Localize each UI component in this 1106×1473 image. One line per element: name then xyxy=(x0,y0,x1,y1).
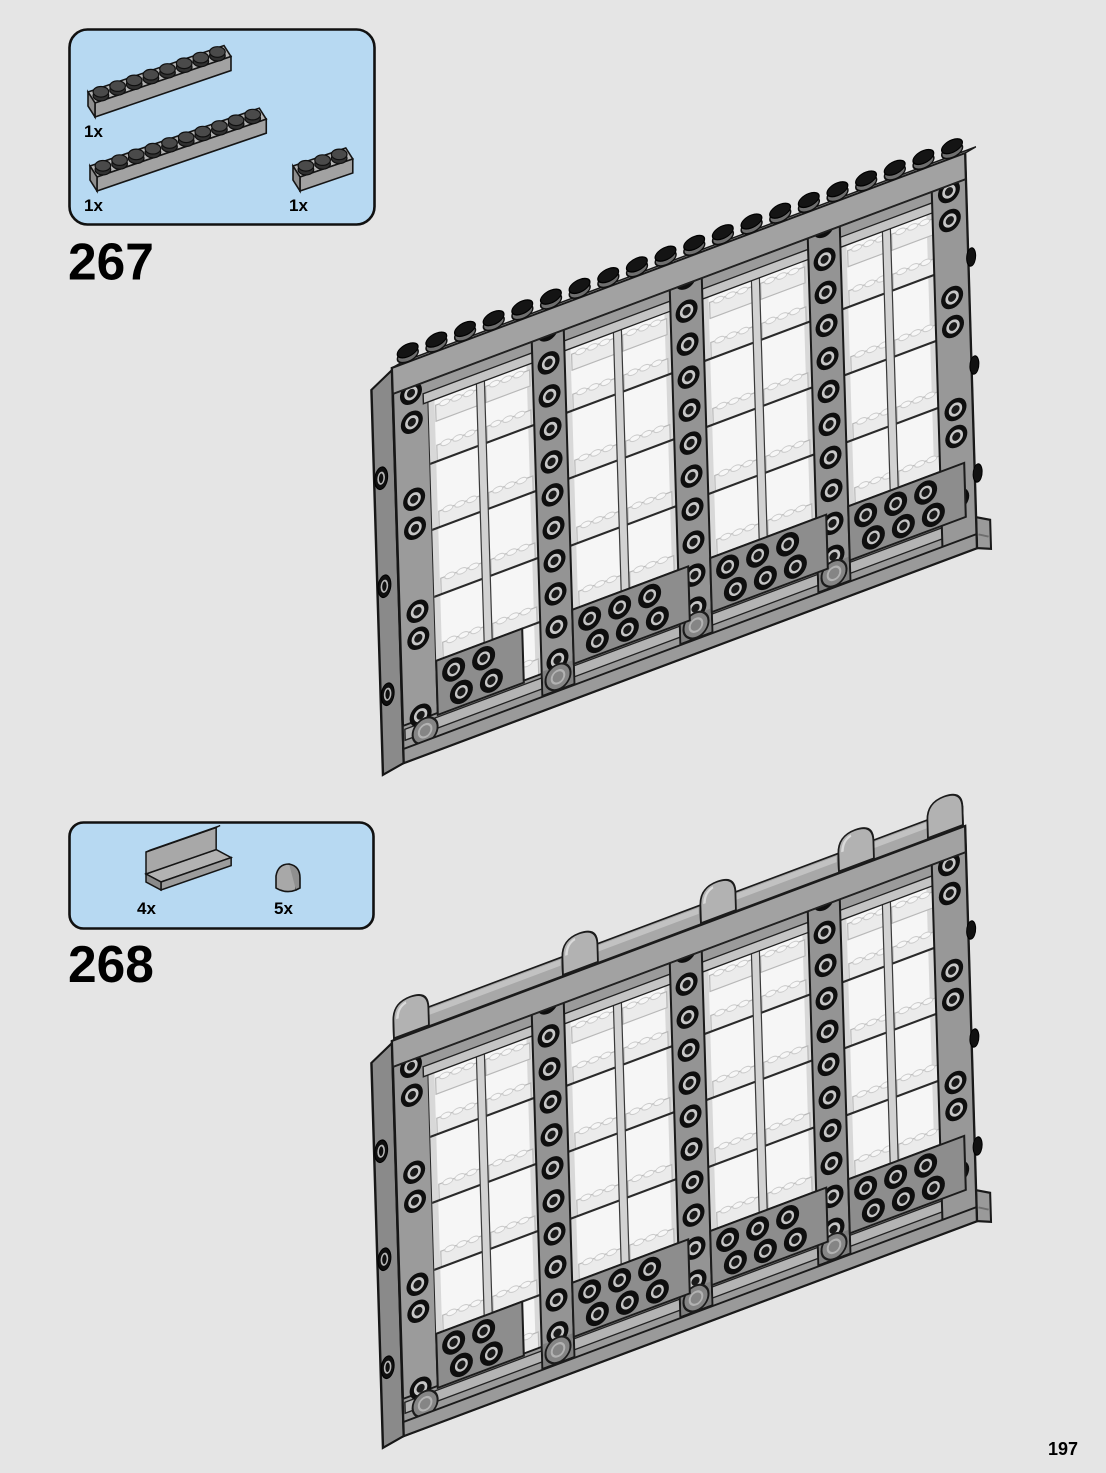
svg-text:4x: 4x xyxy=(137,899,156,918)
svg-text:1x: 1x xyxy=(84,122,103,141)
svg-text:1x: 1x xyxy=(84,196,103,215)
svg-text:1x: 1x xyxy=(289,196,308,215)
svg-text:197: 197 xyxy=(1048,1439,1078,1459)
svg-text:267: 267 xyxy=(68,233,154,291)
svg-text:268: 268 xyxy=(68,935,154,993)
svg-text:5x: 5x xyxy=(274,899,293,918)
